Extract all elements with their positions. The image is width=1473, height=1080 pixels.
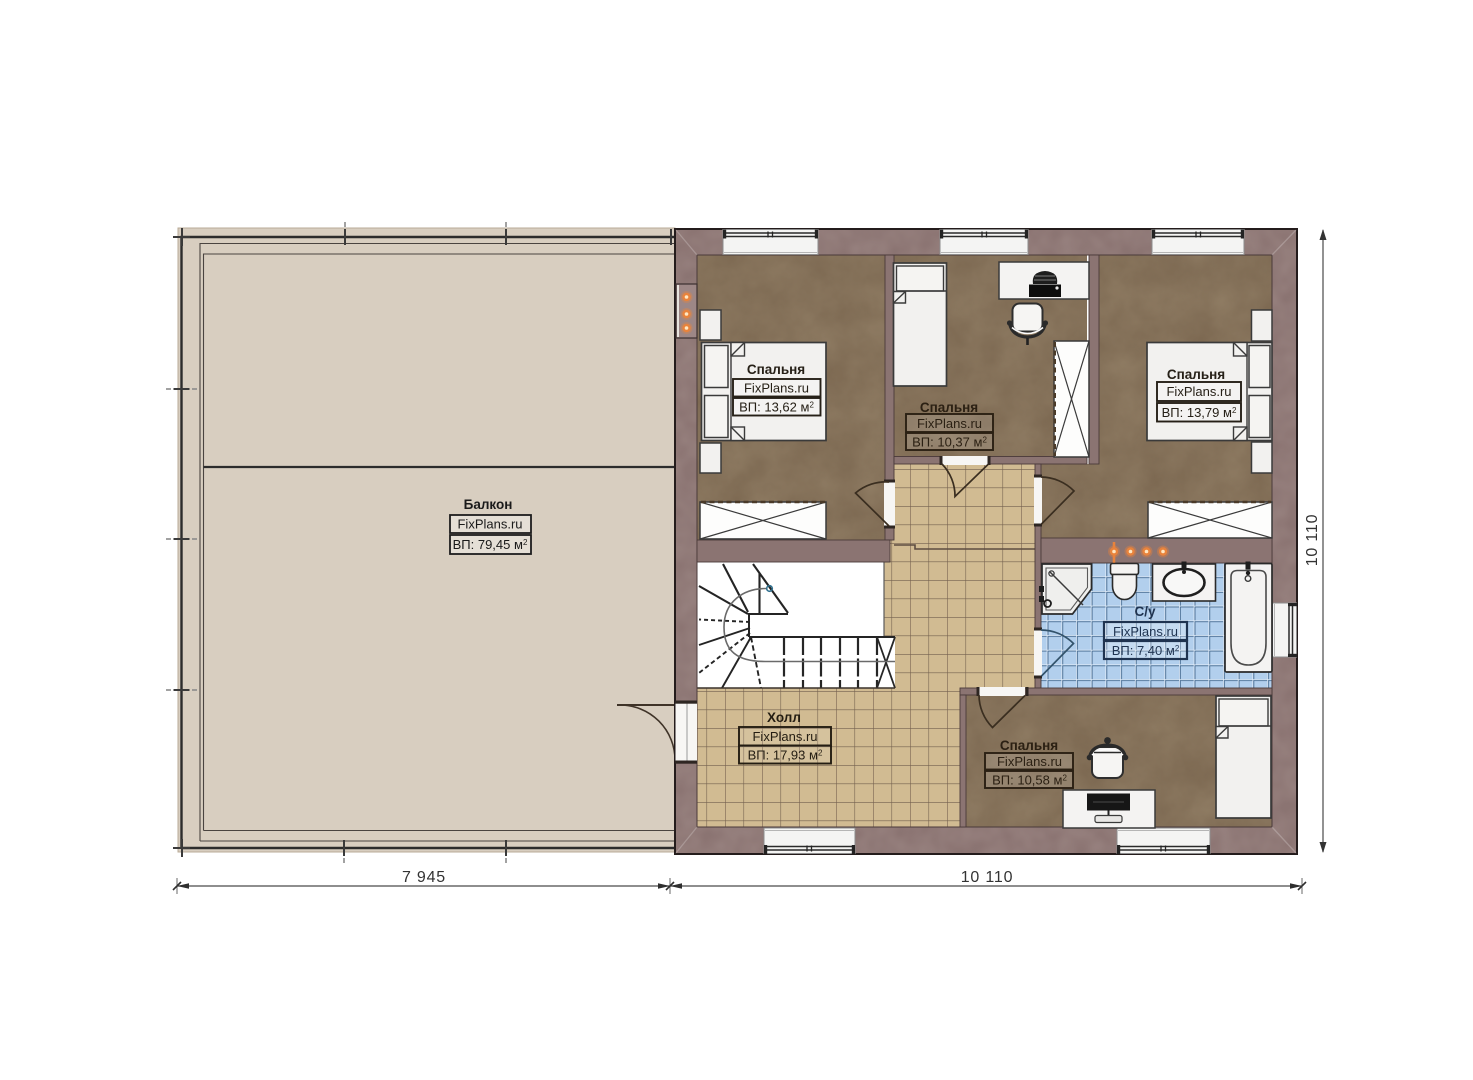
svg-text:FixPlans.ru: FixPlans.ru — [997, 754, 1062, 769]
svg-text:С/у: С/у — [1134, 604, 1156, 619]
svg-text:Спальня: Спальня — [747, 362, 805, 377]
svg-text:FixPlans.ru: FixPlans.ru — [744, 381, 809, 396]
svg-text:ВП: 79,45 м2: ВП: 79,45 м2 — [453, 537, 528, 552]
svg-text:ВП: 13,62 м2: ВП: 13,62 м2 — [739, 400, 814, 415]
svg-text:7 945: 7 945 — [402, 869, 446, 886]
svg-text:Спальня: Спальня — [920, 400, 978, 415]
svg-text:10 110: 10 110 — [961, 869, 1014, 886]
svg-text:ВП: 13,79 м2: ВП: 13,79 м2 — [1162, 405, 1237, 420]
svg-text:ВП: 7,40 м2: ВП: 7,40 м2 — [1112, 643, 1180, 658]
svg-text:ВП: 17,93 м2: ВП: 17,93 м2 — [748, 748, 823, 763]
svg-text:FixPlans.ru: FixPlans.ru — [457, 517, 522, 532]
svg-text:Балкон: Балкон — [464, 497, 513, 512]
svg-text:Холл: Холл — [767, 710, 801, 725]
svg-text:FixPlans.ru: FixPlans.ru — [752, 729, 817, 744]
svg-text:10 110: 10 110 — [1304, 514, 1321, 567]
svg-text:Спальня: Спальня — [1167, 367, 1225, 382]
svg-text:FixPlans.ru: FixPlans.ru — [1166, 384, 1231, 399]
svg-text:ВП: 10,37 м2: ВП: 10,37 м2 — [912, 435, 987, 450]
svg-text:Спальня: Спальня — [1000, 738, 1058, 753]
svg-text:FixPlans.ru: FixPlans.ru — [917, 416, 982, 431]
svg-text:FixPlans.ru: FixPlans.ru — [1113, 624, 1178, 639]
svg-text:ВП: 10,58 м2: ВП: 10,58 м2 — [992, 773, 1067, 788]
